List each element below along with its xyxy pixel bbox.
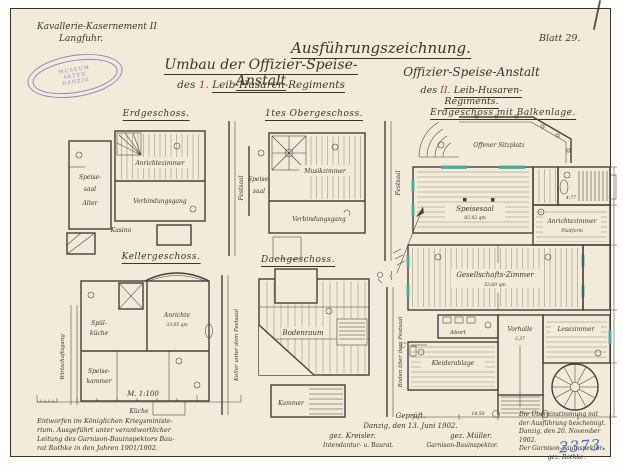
approval-block: Geprüft. Danzig, den 13. Juni 1902. gez.… xyxy=(323,411,498,451)
speisesaal-room xyxy=(412,166,534,234)
eg-room-bottom-label: Kasino xyxy=(110,227,132,234)
archive-number: 2373. xyxy=(558,435,607,456)
title-right-sub2-prefix: des xyxy=(421,85,438,96)
approval-date: Danzig, den 13. Juni 1902. xyxy=(323,421,498,431)
og-room-left-2: saal xyxy=(253,188,265,195)
lesezimmer-label: Lesezimmer xyxy=(556,326,595,333)
vorhalle-label: Vorhalle xyxy=(507,326,533,333)
og-room-main-label: Musikzimmer xyxy=(303,168,347,175)
dg-attic xyxy=(259,269,369,375)
title-left-sub-prefix: des xyxy=(177,79,195,91)
eg-room-left-3: Alter xyxy=(81,200,98,207)
dg-room-bottom-label: Kammer xyxy=(277,400,305,407)
plan-erdgeschoss: Festsaal Speise- saal Alter Anrichtezimm… xyxy=(59,121,249,256)
dim-477: 4,77 xyxy=(565,195,576,201)
certification-line-1: Die Übereinstimmung mit xyxy=(519,411,614,420)
plan-title-obergeschoss: 1tes Obergeschoss. xyxy=(265,109,363,119)
scale-label: M. 1:100 xyxy=(126,390,159,398)
section-mark-label: C xyxy=(400,342,406,350)
title-right-main: Ausführungszeichnung. xyxy=(291,39,461,57)
office-location: Langfuhr. xyxy=(59,34,103,44)
plan-balkenlage: C Offener Sitzplatz Speisesaal 82,42 xyxy=(383,105,616,420)
provenance-note: Entworfen im Königlichen Kriegsministe- … xyxy=(37,417,174,453)
regiment-number-left: 1. xyxy=(199,79,209,91)
salon-label: Gesellschafts-Zimmer xyxy=(456,271,534,279)
drawing-sheet: Kavallerie-Kasernement II Langfuhr. MUSE… xyxy=(10,8,611,457)
approval-sig-1: gez. Kreisler. xyxy=(329,431,376,441)
title-left-sub-rest: Leib-Husaren-Regiments xyxy=(212,79,345,93)
kg-room-bottom-label: Küche xyxy=(129,408,149,415)
office-name: Kavallerie-Kasernement II xyxy=(37,22,157,32)
eg-old-building xyxy=(69,141,111,229)
lesezimmer-room xyxy=(543,315,612,363)
plan-title-erdgeschoss: Erdgeschoss. xyxy=(123,109,190,119)
approval-role-1: Intendantur- u. Baurat. xyxy=(323,441,394,451)
regiment-number-right: II. xyxy=(440,85,451,96)
eg-room-left-2: saal xyxy=(84,186,96,193)
archive-stamp: MUSEUM AKTEN DANZIG xyxy=(24,48,125,105)
eg-main-building xyxy=(115,131,205,221)
kg-room1-label: Spül- xyxy=(91,320,107,327)
eg-room-main-label: Anrichtezimmer xyxy=(134,160,185,167)
kg-gang-label: Wirtschaftsgang xyxy=(60,334,66,380)
terrace-label: Offener Sitzplatz xyxy=(473,142,525,149)
title-left-sub: des 1. Leib-Husaren-Regiments xyxy=(141,79,381,91)
provenance-line-1: Entworfen im Königlichen Kriegsministe- xyxy=(37,417,174,426)
garderobe-label: Kleiderablage xyxy=(431,360,475,367)
og-room-left-1: Speise- xyxy=(248,176,270,183)
og-main-building xyxy=(269,133,365,259)
hall-label: Speisesaal xyxy=(456,205,494,213)
provenance-line-4: rat Rothke in den Jahren 1901/1902. xyxy=(37,444,174,453)
eg-corridor-label: Verbindungsgang xyxy=(133,198,187,205)
anrichte-room xyxy=(533,205,610,245)
terrace-steps xyxy=(419,122,459,157)
approval-role-2: Garnison-Bauinspektor. xyxy=(427,441,498,451)
kg-room1b-label: küche xyxy=(90,330,109,337)
title-right-main-text: Ausführungszeichnung. xyxy=(291,39,471,59)
terrace-outline xyxy=(438,115,571,163)
kg-room2-area: 33,05 qm xyxy=(166,322,187,328)
spiral-stair xyxy=(552,364,598,410)
plattform-label: Plattform xyxy=(560,228,583,234)
certification-line-2: der Ausführung bescheinigt. xyxy=(519,420,614,429)
approval-signatures: gez. Kreisler. gez. Müller. xyxy=(323,431,498,441)
approval-sig-2: gez. Müller. xyxy=(450,431,492,441)
provenance-line-2: rium. Ausgeführt unter verantwortlicher xyxy=(37,426,174,435)
eg-festsaal-wall xyxy=(229,121,235,256)
salon-area: 53,60 qm xyxy=(484,282,505,288)
anrichte-label: Anrichtezimmer xyxy=(546,218,597,225)
hall-area: 82,42 qm xyxy=(464,215,485,221)
abort-room xyxy=(438,315,498,338)
plan-dachgeschoss: Boden über dem Festsaal Bodenraum Kammer xyxy=(237,267,405,417)
dg-room-main-label: Bodenraum xyxy=(281,329,324,337)
eg-room-left-1: Speise- xyxy=(79,174,101,181)
sheet-number: Blatt 29. xyxy=(539,33,580,44)
approval-checked: Geprüft. xyxy=(323,411,498,421)
kg-room2-label: Anrichte xyxy=(163,312,191,319)
title-right-sub1: Offizier-Speise-Anstalt xyxy=(399,65,544,79)
provenance-line-3: Leitung des Garnison-Bauinspektors Bau- xyxy=(37,435,174,444)
kg-room3-label: Speise- xyxy=(88,368,110,375)
approval-roles: Intendantur- u. Baurat. Garnison-Bauinsp… xyxy=(323,441,498,451)
title-right-sub2: des II. Leib-Husaren-Regiments. xyxy=(399,85,544,107)
scale-bar: M. 1:100 xyxy=(35,389,245,409)
dim-237: 2,37 xyxy=(514,336,525,342)
og-corridor-label: Verbindungsgang xyxy=(292,216,346,223)
abort-label: Abort xyxy=(449,330,466,336)
kg-room3b-label: kammer xyxy=(86,378,112,385)
archive-stamp-text: MUSEUM AKTEN DANZIG xyxy=(30,53,120,99)
